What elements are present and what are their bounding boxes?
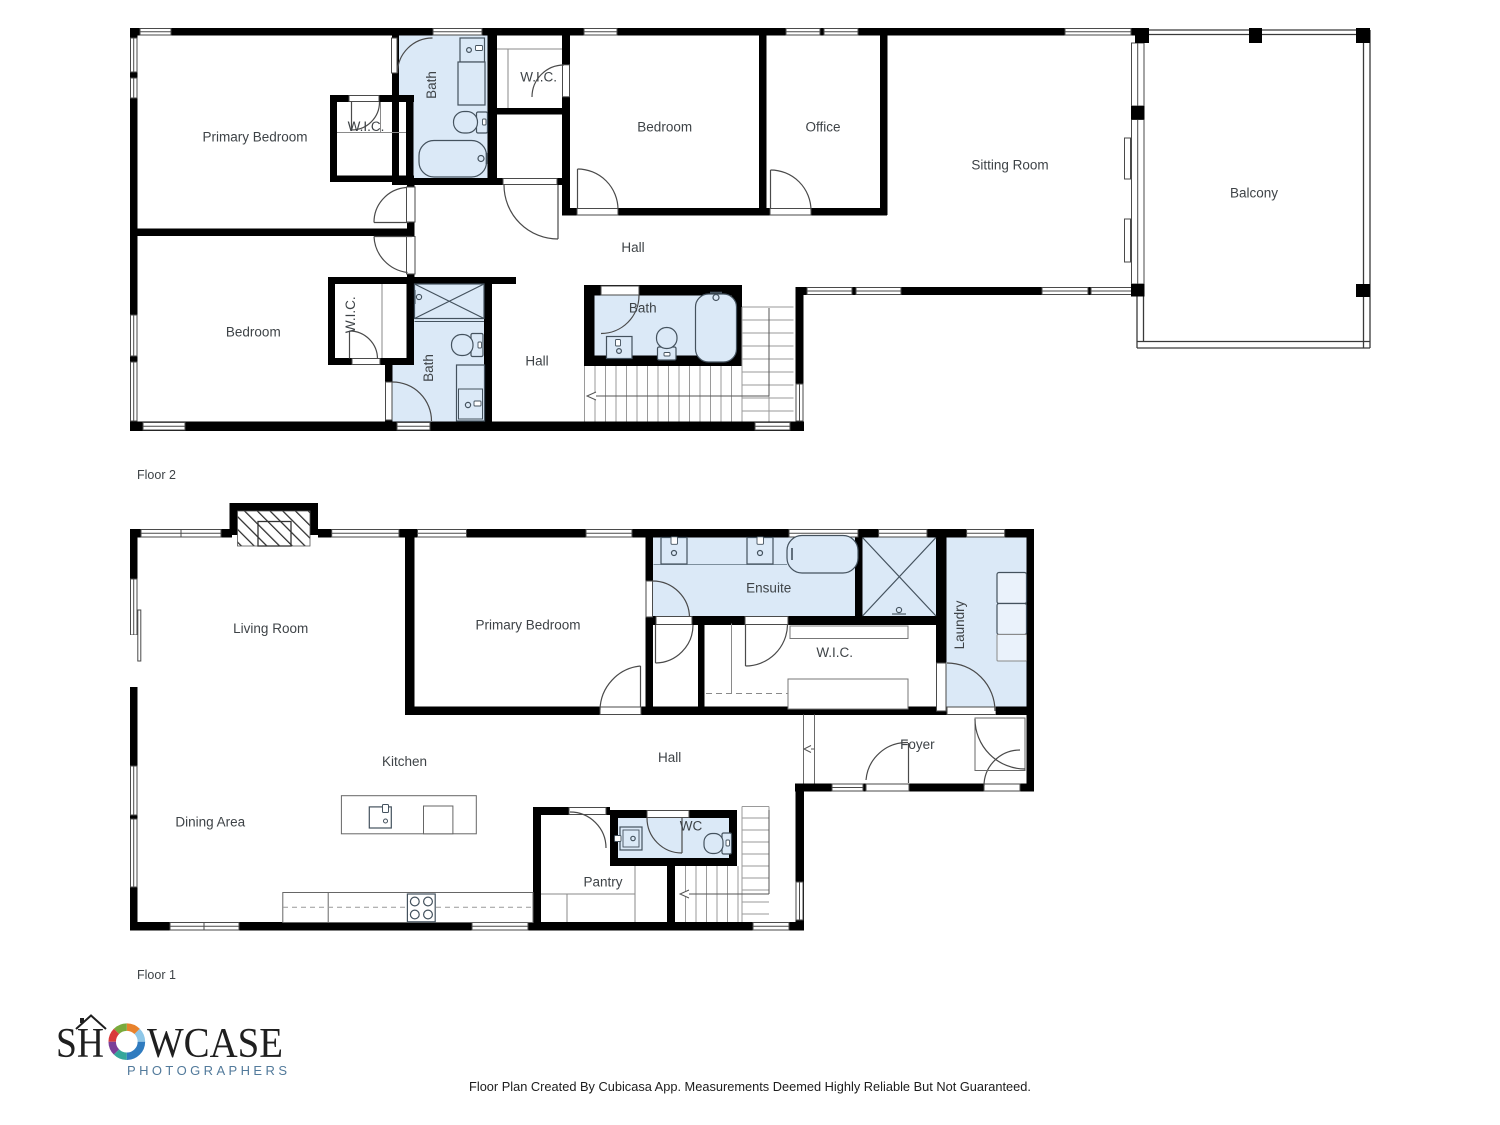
svg-text:Dining Area: Dining Area — [175, 815, 245, 830]
svg-text:Bedroom: Bedroom — [226, 325, 281, 340]
svg-text:Floor 2: Floor 2 — [137, 468, 176, 482]
svg-text:Bath: Bath — [629, 301, 657, 316]
svg-text:W.I.C.: W.I.C. — [343, 296, 358, 333]
svg-text:W.I.C.: W.I.C. — [816, 645, 853, 660]
svg-text:Primary Bedroom: Primary Bedroom — [475, 618, 580, 633]
svg-text:Living Room: Living Room — [233, 621, 308, 636]
svg-text:Pantry: Pantry — [583, 875, 622, 890]
svg-text:Floor 1: Floor 1 — [137, 968, 176, 982]
svg-text:WCASE: WCASE — [147, 1021, 283, 1067]
svg-text:W.I.C.: W.I.C. — [348, 119, 385, 134]
svg-text:Ensuite: Ensuite — [746, 581, 791, 596]
svg-text:Balcony: Balcony — [1230, 186, 1278, 201]
svg-text:Office: Office — [805, 120, 840, 135]
svg-text:Hall: Hall — [621, 240, 644, 255]
svg-text:Laundry: Laundry — [952, 600, 967, 649]
svg-text:Floor Plan Created By Cubicasa: Floor Plan Created By Cubicasa App. Meas… — [469, 1079, 1031, 1094]
svg-text:Sitting Room: Sitting Room — [971, 158, 1048, 173]
svg-text:Foyer: Foyer — [900, 737, 935, 752]
svg-text:W.I.C.: W.I.C. — [520, 70, 557, 85]
svg-text:Primary Bedroom: Primary Bedroom — [202, 130, 307, 145]
svg-text:WC: WC — [680, 819, 703, 834]
svg-text:Hall: Hall — [658, 750, 681, 765]
svg-text:Kitchen: Kitchen — [382, 754, 427, 769]
svg-text:SH: SH — [56, 1021, 104, 1067]
svg-text:Bath: Bath — [424, 71, 439, 99]
svg-text:Hall: Hall — [525, 354, 548, 369]
svg-text:Bath: Bath — [421, 354, 436, 382]
svg-text:Bedroom: Bedroom — [637, 120, 692, 135]
